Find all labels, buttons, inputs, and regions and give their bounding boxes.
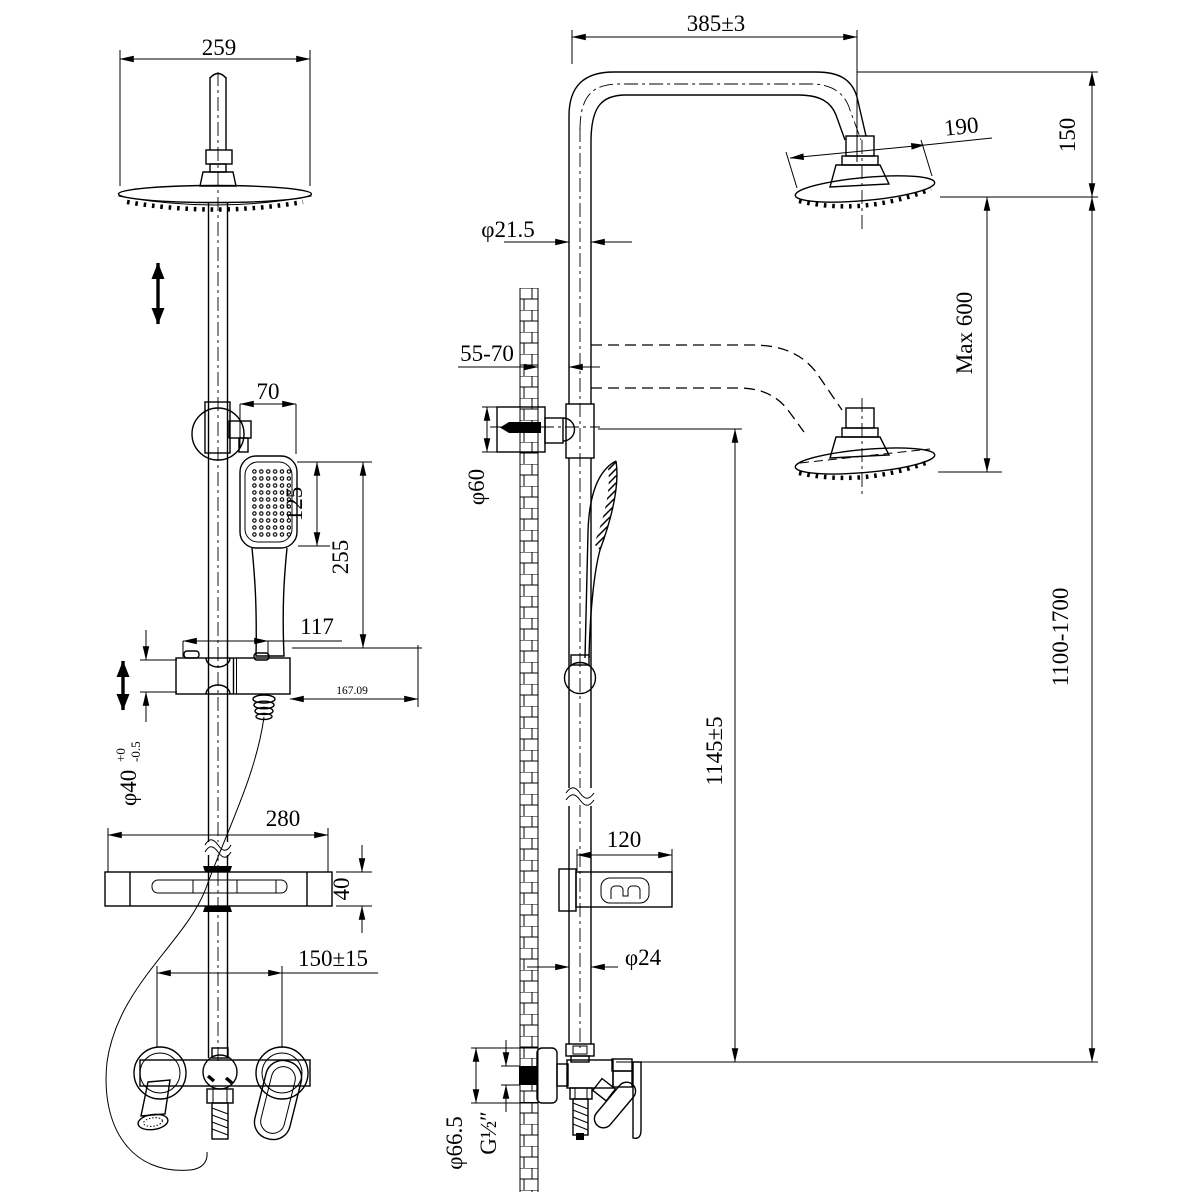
dim-label-hand-shower-face: 125: [282, 487, 307, 522]
dim-hand-shower-height: 1145±5: [598, 429, 742, 1062]
dim-label-head-drop: 150: [1055, 118, 1080, 153]
dim-slider-offset: 167.09: [290, 645, 418, 707]
dim-label-shelf-width: 280: [266, 806, 301, 831]
dim-label-pole-tol-lower: -0.5: [128, 741, 143, 762]
front-riser-pipe-icon: [204, 72, 232, 1062]
dim-inlet-spacing: 150±15: [157, 946, 378, 1048]
front-view: 259 70 125 255: [105, 35, 422, 1170]
dim-slider-width: 117: [183, 614, 342, 657]
dim-pipe-diameter: φ24: [527, 945, 662, 970]
side-wall-bracket-icon: [490, 404, 600, 458]
shower-system-drawing: 259 70 125 255: [0, 0, 1200, 1200]
dim-label-arm-reach: 385±3: [687, 11, 746, 36]
dim-shelf-thickness: 40: [329, 845, 372, 933]
dim-hand-shower-face: 125: [282, 462, 372, 546]
dim-label-hand-shower-height: 1145±5: [702, 716, 727, 785]
dim-label-shelf-thickness: 40: [329, 878, 354, 901]
dim-label-max-lower-drop: Max 600: [952, 292, 977, 374]
dim-max-lower-drop: Max 600: [952, 197, 987, 472]
side-riser-pipe-icon: [566, 116, 594, 1048]
technical-drawing-page: 259 70 125 255: [0, 0, 1200, 1200]
dim-label-hand-shower-width: 70: [257, 379, 280, 404]
dim-overall-height: 1100-1700: [1048, 197, 1092, 1062]
dim-upper-pipe-diameter: φ21.5: [481, 217, 632, 242]
dim-label-upper-pipe-diameter: φ21.5: [481, 217, 535, 242]
dim-pole-diameter: φ40 +0 -0.5: [113, 630, 177, 806]
dim-label-inlet-spacing: 150±15: [298, 946, 368, 971]
dim-label-overall-height: 1100-1700: [1048, 588, 1073, 687]
dim-label-pipe-diameter: φ24: [625, 945, 662, 970]
dim-arm-reach: 385±3: [572, 11, 857, 162]
front-overhead-shower-icon: [119, 150, 312, 210]
front-shelf-icon: [105, 866, 332, 912]
side-upper-arm-icon: [569, 72, 866, 232]
dim-label-thread-size: G½″: [476, 1111, 501, 1154]
dim-label-hand-shower-length: 255: [328, 540, 353, 575]
dim-label-head-diameter: 190: [943, 112, 980, 140]
dim-label-escutcheon-diameter: φ66.5: [442, 1116, 467, 1170]
front-hand-shower-icon: [240, 456, 297, 656]
dim-head-drop: 150: [1055, 72, 1092, 197]
dim-label-pole-tol-upper: +0: [113, 748, 128, 762]
front-mixer-faucet-icon: [134, 1047, 310, 1143]
dim-label-pole-diameter: φ40: [116, 770, 141, 806]
front-slider-bracket-icon: [176, 651, 290, 720]
front-slider-holder-icon: [192, 402, 251, 460]
side-view: 385±3 190 150 1100-1700 Max 600 φ21.5 55…: [442, 11, 1098, 1192]
dim-flange-diameter: φ60: [464, 407, 498, 505]
dim-thread-size: G½″: [476, 1040, 520, 1155]
side-shelf-icon: [559, 869, 672, 911]
dim-label-head-width: 259: [202, 35, 237, 60]
dim-label-flange-diameter: φ60: [464, 469, 489, 505]
dim-label-wall-clearance: 55-70: [460, 341, 514, 366]
dim-label-shelf-depth: 120: [607, 827, 642, 852]
side-lower-arm-icon: [591, 345, 936, 496]
dim-label-slider-offset: 167.09: [336, 685, 368, 697]
dim-label-slider-width: 117: [300, 614, 334, 639]
side-overhead-shower-upper-icon: [794, 136, 936, 207]
